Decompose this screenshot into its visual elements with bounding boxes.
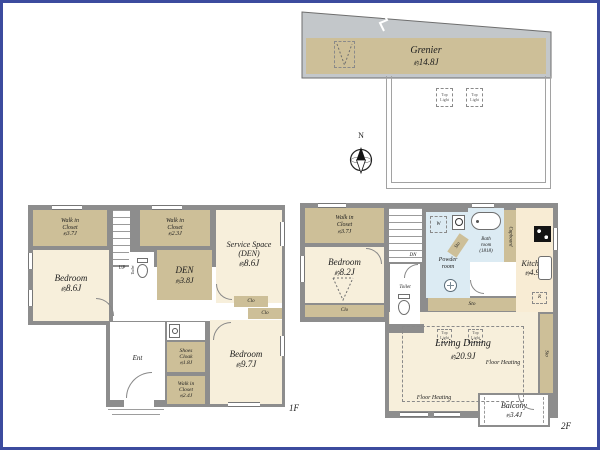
f2-storage-north: Sto <box>428 298 516 311</box>
f1-toilet-label: Toilet <box>129 259 137 281</box>
room-name: Bedroom <box>328 257 361 267</box>
room-name: Service Space (DEN) <box>227 240 272 258</box>
f1-closet-b: Clo <box>248 308 282 319</box>
washer-area: W <box>430 216 447 233</box>
water-heater-icon <box>452 215 465 230</box>
window <box>318 203 346 208</box>
window <box>228 402 260 407</box>
f1-ent-label: Ent <box>110 352 165 364</box>
room-size: 約2.3J <box>168 231 182 238</box>
grenier-size: 約14.8J <box>414 57 439 67</box>
f2-living-dining-name: Living Dining <box>399 337 527 350</box>
toilet-icon <box>398 294 411 318</box>
window <box>553 228 558 250</box>
f2-toilet-label: Toilet <box>390 284 420 292</box>
toilet-icon <box>137 258 149 280</box>
room-size: 約3.7J <box>63 231 77 238</box>
f1-entrance-opening <box>124 398 154 407</box>
floor-plan-canvas: N Grenier 約14.8J Top Light Top Light Wal… <box>0 0 600 450</box>
f1-service-space-label: Service Space (DEN) 約8.6J <box>216 226 282 282</box>
f1-bedroom-west-label: Bedroom 約8.6J <box>33 258 109 308</box>
sink-icon <box>444 279 457 292</box>
room-size: 約3.8J <box>175 276 193 285</box>
f2-storage-east: Sto <box>540 314 553 393</box>
f2-closet: Clo <box>305 305 384 317</box>
room-name: Walk in Closet <box>336 215 354 229</box>
room-size: 約2.4J <box>180 393 193 399</box>
room-name: Shoes Cloak <box>179 348 192 361</box>
f1-floor-label: 1F <box>284 402 304 414</box>
f2-bath-room-label: Bath room (1818) <box>468 232 504 260</box>
bathtub-icon <box>471 212 501 230</box>
room-size: 約9.7J <box>236 359 256 369</box>
room-name: Walk in Closet <box>61 218 79 232</box>
grenier-label: Grenier 約14.8J <box>306 40 546 72</box>
stove-icon <box>534 226 551 242</box>
window <box>52 205 82 210</box>
f1-closet-a: Clo <box>234 296 268 307</box>
f1-den-label: DEN 約3.8J <box>157 256 212 294</box>
f1-walkin-closet-north-label: Walk in Closet 約2.3J <box>140 211 210 245</box>
floor-heating-label-b: Floor Heating <box>404 393 464 403</box>
room-name: DEN <box>176 265 194 275</box>
room-name: Bedroom <box>230 349 263 359</box>
f1-shoes-cloak-label: Shoes Cloak 約1.8J <box>167 343 205 371</box>
f2-cupboard-label: Cupboard <box>508 226 513 246</box>
room-size: 約1.8J <box>180 360 193 366</box>
window <box>400 412 428 417</box>
room-size: 約8.6J <box>61 283 81 293</box>
f2-walkin-closet-label: Walk in Closet 約3.7J <box>305 209 384 242</box>
top-light-box-a: Top Light <box>436 88 453 107</box>
fridge-area: R <box>532 292 547 304</box>
room-size: 約3.4J <box>506 411 522 419</box>
kitchen-sink-icon <box>538 256 552 280</box>
hanger-icon <box>331 276 355 302</box>
f1-stairs <box>113 210 130 265</box>
shoes-box-icon <box>169 324 180 338</box>
room-name: Bedroom <box>55 273 88 283</box>
compass-north-label: N <box>355 131 367 141</box>
f2-storage-east-label: Sto <box>544 350 549 356</box>
window <box>152 205 182 210</box>
f2-stairs-dn-label: DN <box>404 252 422 260</box>
f1-walkin-closet-nw-label: Walk in Closet 約3.7J <box>33 211 107 245</box>
floor-heating-label-a: Floor Heating <box>472 358 534 368</box>
window <box>434 412 460 417</box>
room-size: 約3.7J <box>338 229 352 236</box>
f2-powder-room-label: Powder room <box>426 256 470 272</box>
grenier-name: Grenier <box>410 45 441 57</box>
f1-walkin-closet-south-label: Walk in Closet 約2.4J <box>167 377 205 403</box>
room-name: Walk in Closet <box>178 381 194 394</box>
f2-floor-label: 2F <box>556 420 576 432</box>
top-light-box-b: Top Light <box>466 88 483 107</box>
f1-bedroom-south-label: Bedroom 約9.7J <box>210 336 282 382</box>
room-size: 約8.6J <box>239 258 259 268</box>
window <box>472 203 494 208</box>
room-name: Walk in Closet <box>166 218 184 232</box>
f2-cupboard: Cupboard <box>504 210 516 262</box>
